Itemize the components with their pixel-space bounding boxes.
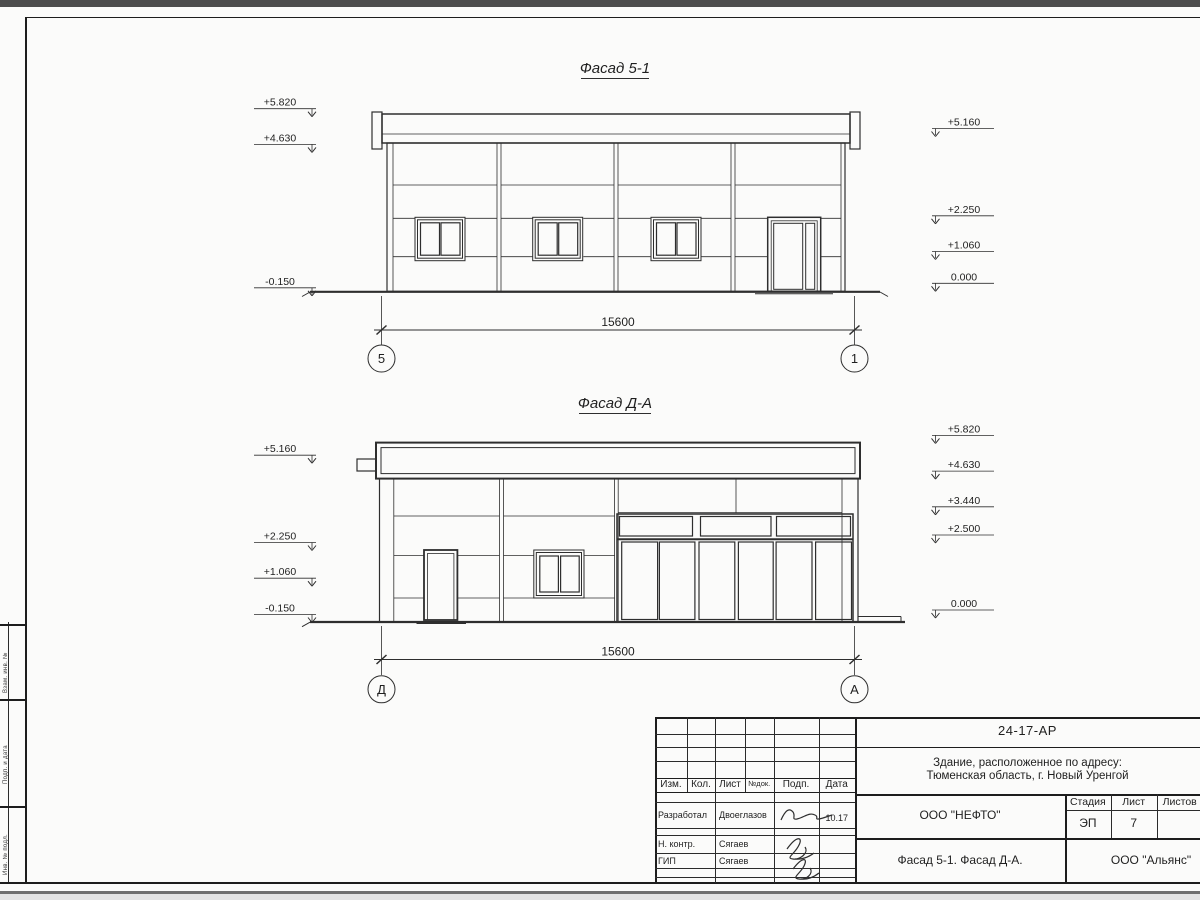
margin-stamp-sep xyxy=(0,624,25,626)
sheets-label: Листов xyxy=(1157,794,1200,810)
margin-stamp-sep xyxy=(0,699,25,701)
row-date: 10.17 xyxy=(819,808,856,828)
col-list: Лист xyxy=(715,778,745,792)
elevation-mark: +3.440 xyxy=(932,495,995,515)
svg-text:-0.150: -0.150 xyxy=(265,603,295,615)
elevation-mark: 0.000 xyxy=(932,271,995,291)
svg-text:+1.060: +1.060 xyxy=(264,566,297,578)
svg-text:+4.630: +4.630 xyxy=(264,132,297,144)
elevation-mark: +5.160 xyxy=(254,443,316,463)
margin-stamp-label: Инв. № подл. xyxy=(3,815,9,875)
col-ndoc: №док. xyxy=(745,778,774,792)
svg-text:15600: 15600 xyxy=(601,645,635,659)
designer-org: ООО "НЕФТО" xyxy=(855,794,1065,838)
window xyxy=(533,217,583,260)
svg-text:0.000: 0.000 xyxy=(951,598,977,610)
contractor-org: ООО "Альянс" xyxy=(1065,838,1200,883)
row-role: Разработал xyxy=(658,805,715,825)
scan-edge-top xyxy=(0,0,1200,7)
drawing-sheet: Взам. инв. № Подп. и дата Инв. № подл. Ф… xyxy=(0,0,1200,900)
svg-text:+5.160: +5.160 xyxy=(948,117,981,129)
row-name: Сягаев xyxy=(719,853,773,868)
col-izm: Изм. xyxy=(655,778,687,792)
facade-5-1-drawing: Фасад 5-1 xyxy=(240,50,1000,390)
window xyxy=(651,217,701,260)
elevation-mark: +5.160 xyxy=(932,117,995,137)
col-podp: Подп. xyxy=(774,778,819,792)
svg-text:А: А xyxy=(850,682,859,697)
svg-text:+1.060: +1.060 xyxy=(948,240,981,252)
margin-stamp-sep xyxy=(0,806,25,808)
svg-text:Д: Д xyxy=(377,682,386,697)
svg-text:15600: 15600 xyxy=(601,315,635,329)
svg-text:+5.160: +5.160 xyxy=(264,443,297,455)
dimension: 15600 xyxy=(374,296,862,345)
col-kol: Кол. xyxy=(687,778,715,792)
axis-bubble: 5 xyxy=(368,345,395,372)
elevation-mark: +2.250 xyxy=(932,204,995,224)
facade-d-a-drawing: Фасад Д-А xyxy=(240,385,1000,725)
elevation-mark: +5.820 xyxy=(932,423,995,443)
project-name-line1: Здание, расположенное по адресу: xyxy=(933,757,1122,770)
svg-text:1: 1 xyxy=(851,351,858,366)
elevation-mark: 0.000 xyxy=(932,598,995,618)
svg-text:+2.250: +2.250 xyxy=(948,204,981,216)
scan-edge-bottom xyxy=(0,894,1200,900)
svg-text:0.000: 0.000 xyxy=(951,271,977,283)
elevation-mark: +1.060 xyxy=(932,240,995,260)
svg-text:+3.440: +3.440 xyxy=(948,495,981,507)
project-name: Здание, расположенное по адресу: Тюменск… xyxy=(855,747,1200,794)
svg-text:Фасад Д-А: Фасад Д-А xyxy=(578,395,652,412)
stage-value: ЭП xyxy=(1065,810,1111,838)
col-data: Дата xyxy=(819,778,856,792)
sheet-number: 7 xyxy=(1111,810,1157,838)
row-name: Двоеглазов xyxy=(719,805,773,825)
svg-text:+2.250: +2.250 xyxy=(264,531,297,543)
svg-text:+5.820: +5.820 xyxy=(948,423,981,435)
window xyxy=(534,550,584,598)
facade-d-a-title: Фасад Д-А xyxy=(578,395,652,414)
elevation-mark: +2.250 xyxy=(254,531,316,551)
row-role: ГИП xyxy=(658,853,715,868)
storefront-glazing xyxy=(617,514,853,622)
side-door xyxy=(417,550,467,624)
entrance-door xyxy=(755,217,833,293)
elevation-mark: +4.630 xyxy=(254,132,316,152)
elevation-mark: -0.150 xyxy=(254,603,316,623)
margin-stamp-label: Подп. и дата xyxy=(3,724,9,784)
ground-line xyxy=(302,617,905,627)
svg-text:Фасад 5-1: Фасад 5-1 xyxy=(580,60,650,77)
sheet-title: Фасад 5-1. Фасад Д-А. xyxy=(855,838,1065,883)
margin-stamp-label: Взам. инв. № xyxy=(3,633,9,693)
sheet-label: Лист xyxy=(1111,794,1157,810)
elevation-mark: +1.060 xyxy=(254,566,316,586)
elevation-mark: +5.820 xyxy=(254,97,316,117)
frame-left xyxy=(25,17,27,883)
facade-5-1-title: Фасад 5-1 xyxy=(580,60,650,79)
doc-code: 24-17-АР xyxy=(855,717,1200,747)
axis-bubble: Д xyxy=(368,676,395,703)
svg-text:+5.820: +5.820 xyxy=(264,97,297,109)
dimension: 15600 xyxy=(374,626,862,675)
axis-bubble: 1 xyxy=(841,345,868,372)
window xyxy=(415,217,465,260)
project-name-line2: Тюменская область, г. Новый Уренгой xyxy=(926,770,1128,783)
row-name: Сягаев xyxy=(719,835,773,853)
svg-text:5: 5 xyxy=(378,351,385,366)
stage-label: Стадия xyxy=(1065,794,1111,810)
elevation-mark: -0.150 xyxy=(254,276,316,296)
svg-text:-0.150: -0.150 xyxy=(265,276,295,288)
axis-bubble: А xyxy=(841,676,868,703)
frame-top xyxy=(25,17,1200,19)
svg-text:+2.500: +2.500 xyxy=(948,523,981,535)
svg-text:+4.630: +4.630 xyxy=(948,459,981,471)
elevation-mark: +2.500 xyxy=(932,523,995,543)
title-block: Изм. Кол. Лист №док. Подп. Дата Разработ… xyxy=(655,717,1200,883)
elevation-mark: +4.630 xyxy=(932,459,995,479)
row-role: Н. контр. xyxy=(658,835,715,853)
